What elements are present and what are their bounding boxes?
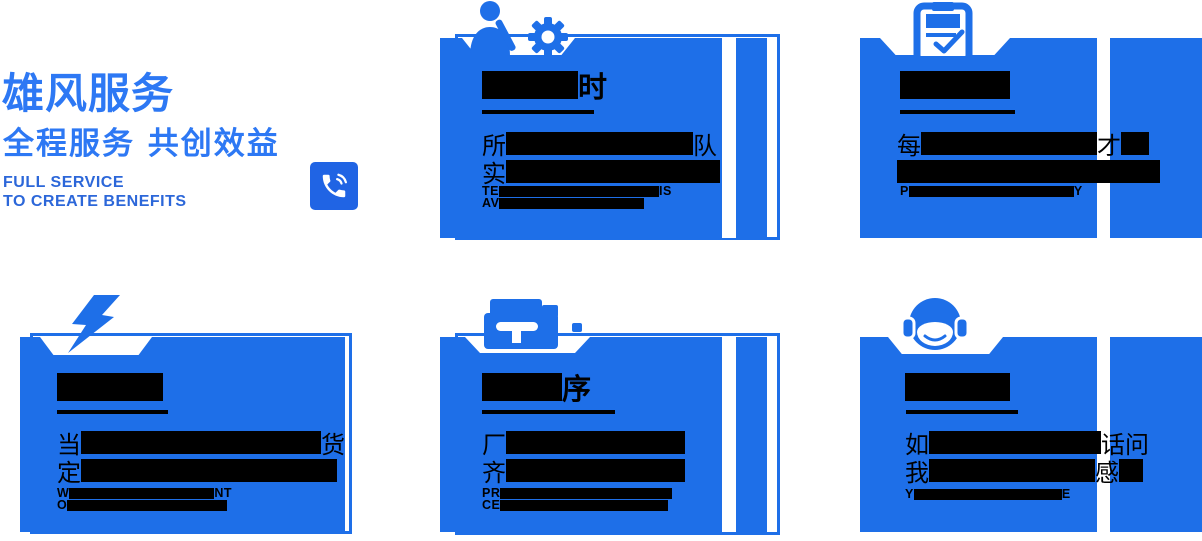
- redacted-text-block: [905, 373, 1010, 401]
- redacted-line: [897, 157, 1160, 185]
- redacted-text-block: [482, 71, 578, 99]
- customer-service-icon: [892, 296, 978, 352]
- technician-gear-icon: [462, 0, 574, 56]
- phone-icon: [319, 171, 349, 201]
- service-card-1: 时 所队实 TEISAV: [440, 38, 767, 238]
- phone-contact-button[interactable]: [310, 162, 358, 210]
- text-fragment: 每: [897, 126, 921, 161]
- redacted-text-block: [506, 132, 693, 155]
- section-subtitle: 全程服务 共创效益: [3, 118, 280, 163]
- redacted-english-line: AV: [482, 197, 672, 209]
- redacted-text-block: [900, 71, 1010, 99]
- text-fragment: 队: [693, 126, 717, 161]
- redacted-text-block: [81, 431, 321, 454]
- redacted-text-block: [482, 373, 562, 401]
- lightning-icon: [58, 295, 128, 353]
- section-title: 雄风服务: [2, 60, 174, 121]
- card-stripe-decoration: [722, 337, 736, 532]
- text-fragment: P: [900, 184, 909, 198]
- text-fragment: IS: [659, 184, 672, 198]
- service-card-3: 当货定 WNTO: [20, 337, 345, 532]
- redacted-text-block: [499, 186, 659, 197]
- redacted-english-line: PR: [482, 487, 672, 499]
- card-body-redacted: 厂齐: [482, 428, 685, 484]
- caption-line-2: TO CREATE BENEFITS: [3, 192, 187, 211]
- redacted-line: 定: [57, 456, 345, 484]
- title-underline: [906, 410, 1018, 414]
- text-fragment: 才: [1097, 126, 1121, 161]
- redacted-line: 我感: [905, 456, 1149, 484]
- redacted-line: 所队: [482, 129, 720, 157]
- card-title-redacted: [900, 70, 1010, 100]
- redacted-line: 厂: [482, 428, 685, 456]
- redacted-text-block: [500, 500, 668, 511]
- card-english-redacted: WNTO: [57, 487, 232, 511]
- redacted-text-block: [1119, 459, 1143, 482]
- caption-line-1: FULL SERVICE: [3, 173, 187, 192]
- redacted-text-block: [67, 500, 227, 511]
- service-card-2: 每才 PY: [860, 38, 1202, 238]
- redacted-text-block: [909, 186, 1074, 197]
- card-body-redacted: 所队实: [482, 129, 720, 185]
- text-fragment: 定: [57, 453, 81, 488]
- redacted-text-block: [914, 489, 1062, 500]
- clipboard-check-icon: [912, 2, 974, 56]
- redacted-english-line: TEIS: [482, 185, 672, 197]
- text-fragment: 齐: [482, 453, 506, 488]
- text-fragment: O: [57, 498, 67, 512]
- redacted-text-block: [69, 488, 214, 499]
- text-fragment: NT: [214, 486, 232, 500]
- text-fragment: 货: [321, 425, 345, 460]
- card-body-redacted: 每才: [897, 129, 1160, 185]
- card-body-redacted: 如话问我感: [905, 428, 1149, 484]
- text-fragment: AV: [482, 196, 499, 210]
- service-card-5: 如话问我感 YE: [860, 337, 1202, 532]
- redacted-text-block: [1121, 132, 1149, 155]
- redacted-line: 齐: [482, 456, 685, 484]
- redacted-text-block: [57, 373, 163, 401]
- redacted-text-block: [929, 459, 1095, 482]
- card-english-redacted: PY: [900, 185, 1083, 197]
- services-section: 雄风服务 全程服务 共创效益 FULL SERVICE TO CREATE BE…: [0, 0, 1202, 541]
- card-title-redacted: 时: [482, 70, 607, 100]
- text-fragment: 我: [905, 453, 929, 488]
- service-card-4: 序 厂齐 PRCE: [440, 337, 767, 532]
- card-title-redacted: [57, 372, 163, 402]
- redacted-english-line: YE: [905, 488, 1071, 500]
- text-fragment: 时: [578, 64, 607, 106]
- card-title-redacted: 序: [482, 372, 591, 402]
- redacted-text-block: [506, 459, 685, 482]
- card-stripe-decoration: [722, 38, 736, 238]
- redacted-english-line: WNT: [57, 487, 232, 499]
- redacted-text-block: [506, 431, 685, 454]
- card-english-redacted: PRCE: [482, 487, 672, 511]
- title-underline: [900, 110, 1015, 114]
- redacted-text-block: [506, 160, 720, 183]
- card-title-redacted: [905, 372, 1010, 402]
- redacted-text-block: [500, 488, 672, 499]
- text-fragment: 感: [1095, 453, 1119, 488]
- title-underline: [482, 110, 594, 114]
- redacted-text-block: [81, 459, 337, 482]
- redacted-text-block: [929, 431, 1101, 454]
- redacted-english-line: PY: [900, 185, 1083, 197]
- redacted-text-block: [897, 160, 1160, 183]
- title-underline: [482, 410, 615, 414]
- storefront-icon: [484, 299, 586, 349]
- redacted-line: 每才: [897, 129, 1160, 157]
- card-english-redacted: TEISAV: [482, 185, 672, 209]
- text-fragment: Y: [905, 487, 914, 501]
- card-body-redacted: 当货定: [57, 428, 345, 484]
- redacted-english-line: CE: [482, 499, 672, 511]
- section-caption: FULL SERVICE TO CREATE BENEFITS: [3, 173, 187, 211]
- text-fragment: E: [1062, 487, 1071, 501]
- text-fragment: Y: [1074, 184, 1083, 198]
- redacted-text-block: [499, 198, 644, 209]
- redacted-text-block: [921, 132, 1097, 155]
- text-fragment: CE: [482, 498, 500, 512]
- card-english-redacted: YE: [905, 488, 1071, 500]
- redacted-line: 实: [482, 157, 720, 185]
- redacted-line: 当货: [57, 428, 345, 456]
- text-fragment: 序: [562, 366, 591, 408]
- title-underline: [57, 410, 168, 414]
- redacted-english-line: O: [57, 499, 232, 511]
